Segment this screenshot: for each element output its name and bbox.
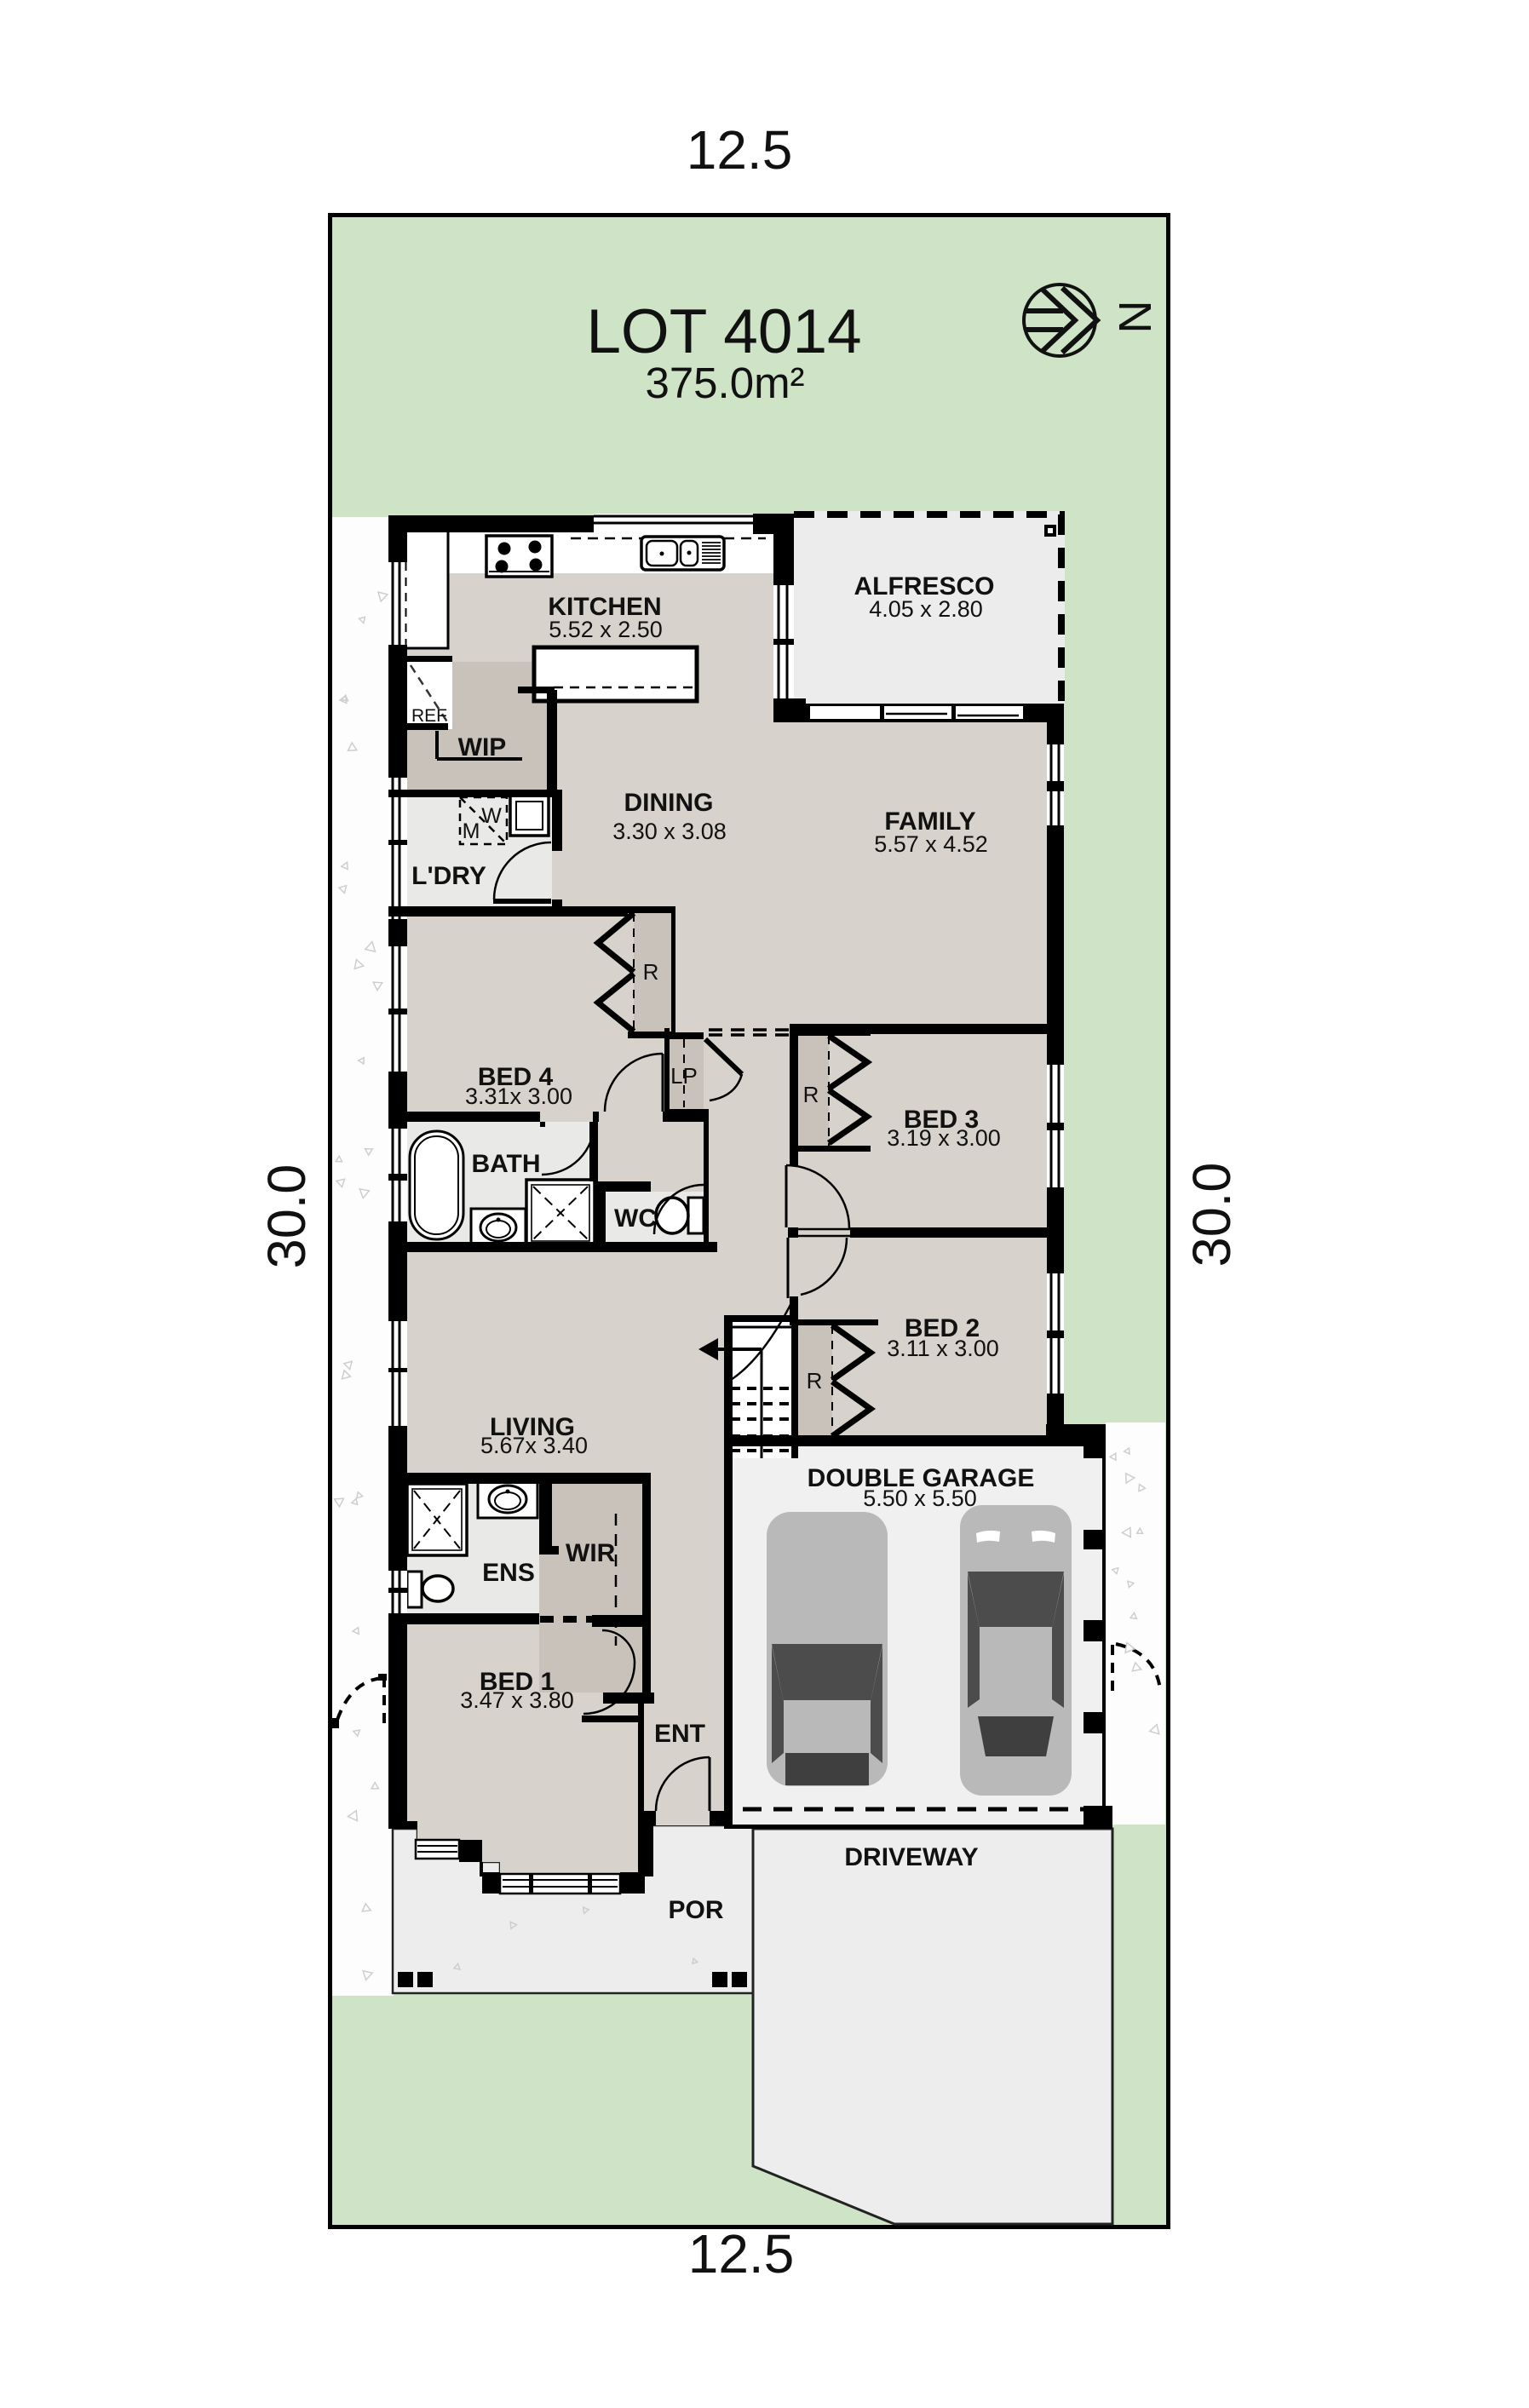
svg-text:WIP: WIP (458, 733, 507, 761)
svg-text:3.47 x 3.80: 3.47 x 3.80 (460, 1687, 574, 1713)
svg-text:ENT: ENT (654, 1720, 705, 1748)
svg-text:R: R (803, 1082, 819, 1107)
svg-text:3.11 x 3.00: 3.11 x 3.00 (887, 1336, 999, 1361)
svg-text:BATH: BATH (471, 1150, 540, 1178)
svg-text:LP: LP (670, 1063, 698, 1089)
svg-text:R: R (643, 959, 659, 985)
svg-text:R: R (807, 1368, 823, 1394)
svg-text:5.67x 3.40: 5.67x 3.40 (480, 1433, 588, 1458)
svg-text:30.0: 30.0 (1182, 1163, 1242, 1267)
svg-text:L'DRY: L'DRY (411, 862, 486, 890)
svg-text:4.05 x 2.80: 4.05 x 2.80 (869, 596, 983, 622)
svg-text:12.5: 12.5 (687, 119, 793, 181)
svg-text:M: M (463, 819, 480, 843)
svg-text:POR: POR (668, 1896, 723, 1924)
svg-text:5.52 x 2.50: 5.52 x 2.50 (549, 617, 663, 642)
svg-text:DINING: DINING (624, 789, 714, 817)
svg-text:WC: WC (614, 1204, 657, 1233)
svg-text:REF: REF (411, 706, 447, 726)
svg-text:30.0: 30.0 (257, 1164, 317, 1269)
svg-text:375.0m²: 375.0m² (645, 359, 804, 407)
svg-text:LOT 4014: LOT 4014 (586, 297, 861, 366)
svg-text:DRIVEWAY: DRIVEWAY (844, 1843, 978, 1871)
svg-text:ENS: ENS (482, 1559, 535, 1587)
svg-text:3.19 x 3.00: 3.19 x 3.00 (887, 1125, 1001, 1151)
svg-text:WIR: WIR (566, 1539, 616, 1567)
svg-text:5.57 x 4.52: 5.57 x 4.52 (874, 831, 988, 857)
svg-text:12.5: 12.5 (688, 2223, 795, 2284)
svg-text:3.31x 3.00: 3.31x 3.00 (465, 1083, 572, 1109)
svg-text:N: N (1110, 301, 1161, 334)
svg-text:5.50 x 5.50: 5.50 x 5.50 (863, 1486, 977, 1511)
svg-text:W: W (481, 804, 502, 828)
svg-text:3.30 x 3.08: 3.30 x 3.08 (612, 819, 727, 844)
